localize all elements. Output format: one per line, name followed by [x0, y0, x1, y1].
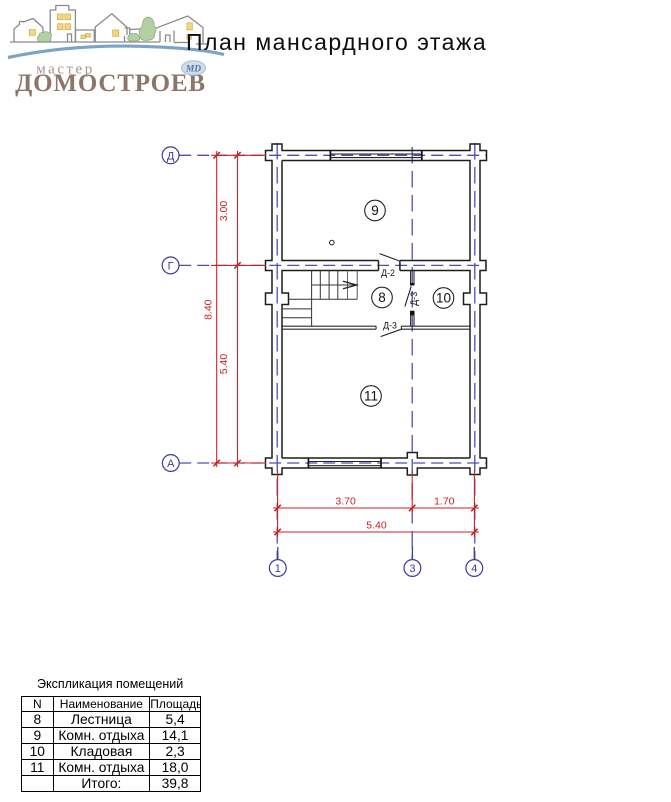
svg-text:Д: Д	[167, 150, 175, 162]
svg-text:10: 10	[436, 291, 451, 306]
svg-text:1: 1	[275, 563, 281, 575]
svg-text:9: 9	[371, 203, 379, 218]
svg-text:3.00: 3.00	[218, 201, 230, 222]
svg-text:5.40: 5.40	[218, 354, 230, 375]
svg-text:Д-3: Д-3	[409, 292, 419, 306]
svg-text:3: 3	[409, 563, 415, 575]
svg-text:Г: Г	[168, 260, 174, 272]
svg-text:MD: MD	[185, 65, 201, 75]
svg-text:4: 4	[471, 563, 477, 575]
svg-text:1.70: 1.70	[434, 496, 455, 508]
svg-text:А: А	[167, 458, 175, 470]
svg-text:3.70: 3.70	[335, 496, 356, 508]
svg-text:Д-3: Д-3	[383, 320, 397, 330]
svg-text:8: 8	[378, 290, 386, 305]
svg-text:11: 11	[364, 389, 378, 404]
svg-text:Д-2: Д-2	[381, 268, 395, 278]
svg-text:ДОМОСТРОЕВ: ДОМОСТРОЕВ	[15, 70, 206, 97]
svg-text:5.40: 5.40	[366, 520, 387, 532]
svg-text:8.40: 8.40	[202, 299, 214, 320]
